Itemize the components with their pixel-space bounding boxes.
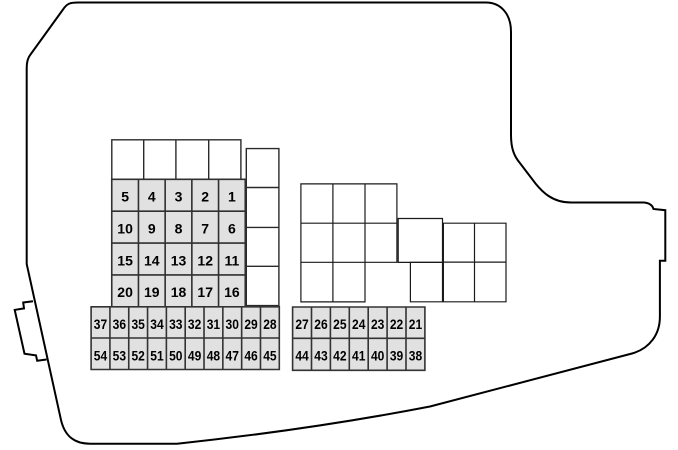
svg-text:43: 43 — [314, 348, 328, 364]
svg-text:7: 7 — [201, 220, 209, 236]
svg-text:22: 22 — [390, 316, 404, 332]
svg-text:39: 39 — [390, 348, 404, 364]
svg-text:13: 13 — [171, 252, 187, 268]
svg-text:31: 31 — [207, 316, 221, 332]
svg-text:12: 12 — [197, 252, 213, 268]
svg-text:32: 32 — [188, 316, 202, 332]
svg-text:38: 38 — [409, 348, 423, 364]
svg-text:52: 52 — [131, 347, 145, 363]
svg-text:20: 20 — [117, 284, 133, 300]
svg-text:3: 3 — [175, 189, 183, 205]
svg-text:15: 15 — [117, 252, 133, 268]
svg-text:50: 50 — [169, 347, 183, 363]
svg-text:24: 24 — [352, 316, 366, 332]
svg-text:47: 47 — [226, 347, 240, 363]
svg-text:42: 42 — [333, 348, 347, 364]
svg-text:5: 5 — [121, 189, 129, 205]
svg-text:45: 45 — [263, 347, 277, 363]
svg-text:21: 21 — [409, 316, 423, 332]
svg-text:25: 25 — [333, 316, 347, 332]
svg-text:19: 19 — [144, 284, 160, 300]
svg-text:9: 9 — [148, 220, 156, 236]
svg-text:14: 14 — [144, 252, 160, 268]
svg-text:40: 40 — [371, 348, 385, 364]
svg-text:8: 8 — [175, 220, 183, 236]
svg-text:6: 6 — [228, 220, 236, 236]
svg-text:17: 17 — [197, 284, 213, 300]
svg-text:48: 48 — [207, 347, 221, 363]
svg-text:44: 44 — [295, 348, 309, 364]
svg-text:36: 36 — [113, 316, 127, 332]
svg-text:46: 46 — [244, 347, 258, 363]
svg-text:1: 1 — [228, 189, 236, 205]
svg-text:49: 49 — [188, 347, 202, 363]
svg-text:26: 26 — [314, 316, 328, 332]
svg-text:18: 18 — [171, 284, 187, 300]
svg-text:2: 2 — [201, 189, 209, 205]
svg-text:11: 11 — [224, 252, 239, 268]
svg-text:34: 34 — [150, 316, 164, 332]
svg-text:27: 27 — [295, 316, 309, 332]
svg-text:35: 35 — [131, 316, 145, 332]
svg-text:10: 10 — [117, 220, 133, 236]
svg-text:23: 23 — [371, 316, 385, 332]
svg-text:16: 16 — [224, 284, 240, 300]
svg-text:51: 51 — [150, 347, 164, 363]
svg-text:53: 53 — [113, 347, 127, 363]
svg-text:37: 37 — [94, 316, 108, 332]
svg-text:33: 33 — [169, 316, 183, 332]
svg-text:28: 28 — [263, 316, 277, 332]
svg-text:41: 41 — [352, 348, 366, 364]
svg-text:29: 29 — [244, 316, 258, 332]
svg-text:4: 4 — [148, 189, 156, 205]
svg-text:54: 54 — [94, 347, 108, 363]
svg-text:30: 30 — [226, 316, 240, 332]
